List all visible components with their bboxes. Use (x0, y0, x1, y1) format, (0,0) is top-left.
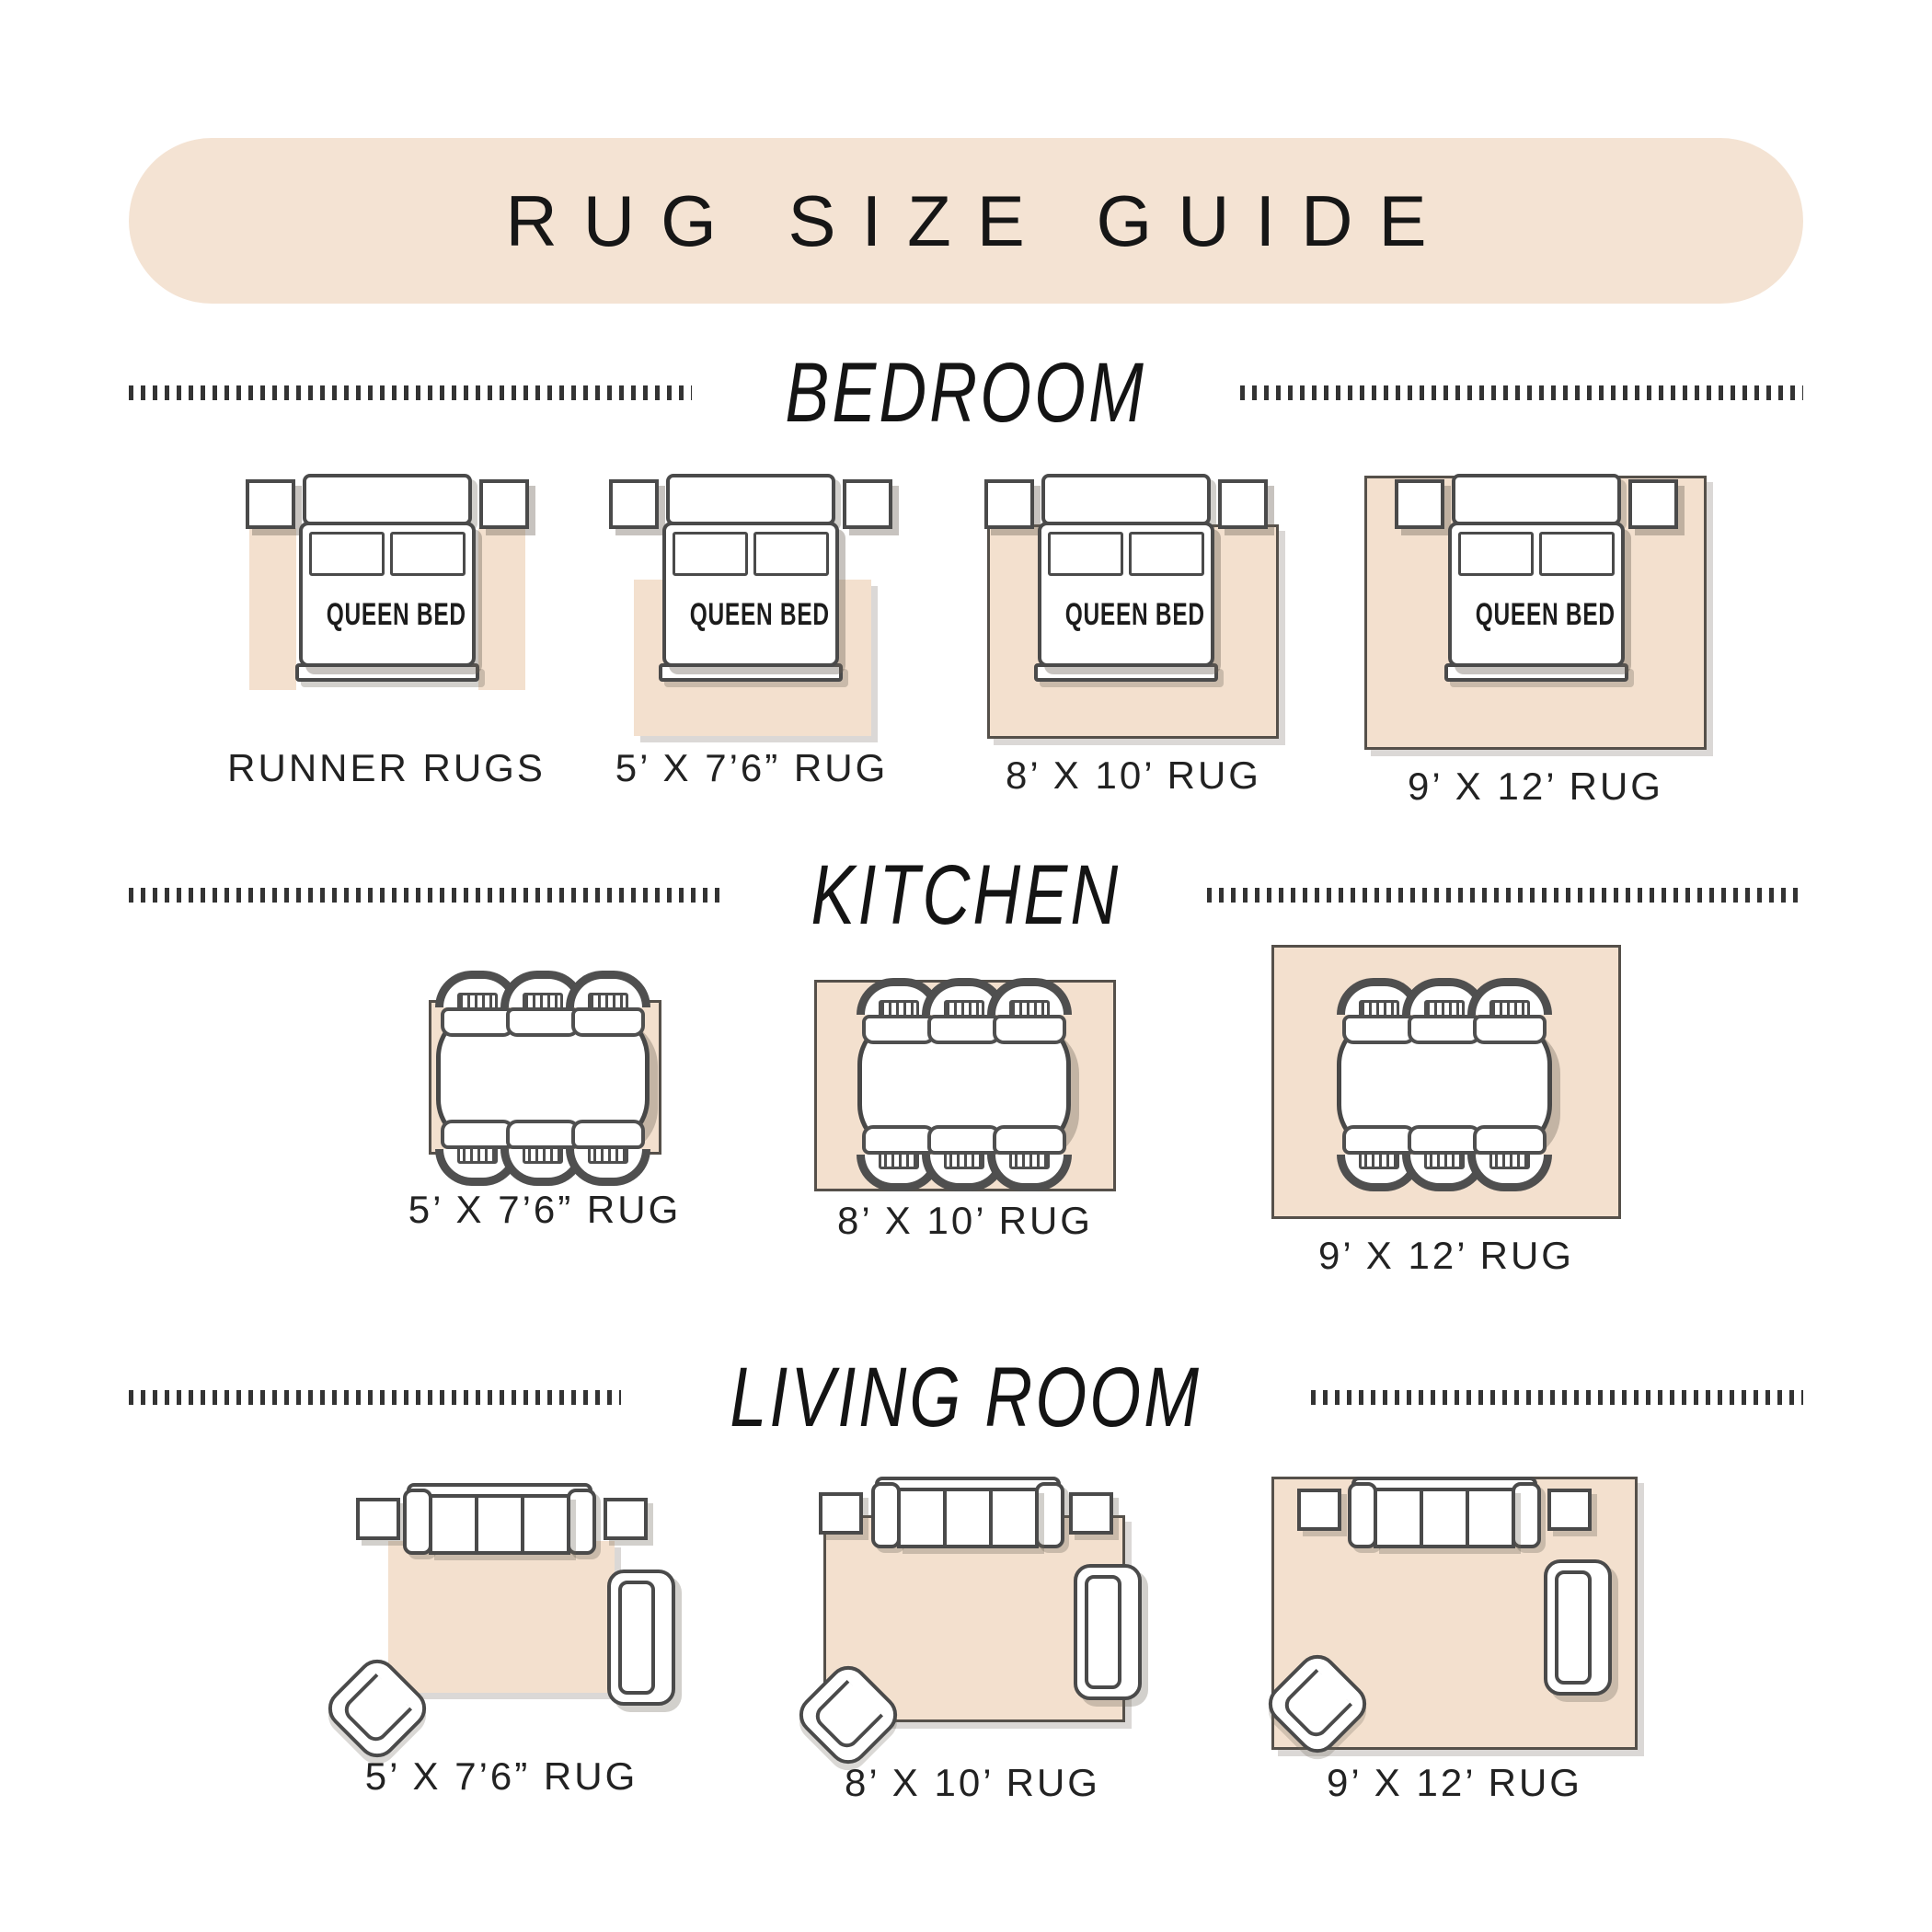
pillow-icon (1458, 532, 1534, 576)
rug-size-label: 9’ X 12’ RUG (1333, 762, 1738, 811)
queen-bed-label: QUEEN BED (1065, 597, 1187, 633)
headboard-icon (666, 474, 835, 525)
queen-bed-label: QUEEN BED (1476, 597, 1597, 633)
section-header-living-room: LIVING ROOM (129, 1356, 1803, 1439)
sofa-icon (871, 1477, 1064, 1550)
bed-icon: QUEEN BED (1448, 522, 1625, 667)
bedroom-diagram-runner: QUEEN BED (246, 474, 529, 687)
rug-size-label: 5’ X 7’6” RUG (299, 1752, 704, 1801)
section-title-bedroom: BEDROOM (786, 345, 1147, 442)
rug-size-guide: RUG SIZE GUIDE BEDROOM QUEEN BED RUNNER … (0, 0, 1932, 1932)
rug-size-label: 8’ X 10’ RUG (763, 1196, 1167, 1246)
rug-size-label: 9’ X 12’ RUG (1252, 1758, 1657, 1808)
bedroom-diagram-9x12: QUEEN BED (1395, 474, 1678, 687)
pillow-icon (1129, 532, 1204, 576)
sofa-icon (403, 1483, 596, 1557)
pillow-icon (753, 532, 829, 576)
rug-size-label: 9’ X 12’ RUG (1244, 1231, 1649, 1281)
side-table-icon (1297, 1489, 1341, 1531)
rug-size-label: RUNNER RUGS (184, 743, 589, 793)
section-header-kitchen: KITCHEN (129, 854, 1803, 937)
bedroom-diagram-8x10: QUEEN BED (984, 474, 1268, 687)
section-title-living-room: LIVING ROOM (730, 1350, 1202, 1446)
sofa-icon (1348, 1477, 1541, 1550)
side-table-icon (604, 1498, 648, 1540)
side-table-icon (356, 1498, 400, 1540)
nightstand-icon (1628, 479, 1678, 529)
pillow-icon (673, 532, 748, 576)
pillow-icon (390, 532, 466, 576)
dotted-divider (1240, 385, 1803, 400)
chair-icon (985, 978, 1074, 1044)
chair-icon (1466, 1125, 1554, 1191)
nightstand-icon (984, 479, 1034, 529)
side-table-icon (1547, 1489, 1592, 1531)
side-table-icon (1069, 1492, 1113, 1535)
kitchen-diagram-5x76 (436, 1009, 650, 1147)
page-title: RUG SIZE GUIDE (479, 179, 1452, 263)
headboard-icon (1452, 474, 1621, 525)
chaise-icon (1074, 1564, 1142, 1700)
dotted-divider (129, 385, 692, 400)
dotted-divider (1311, 1390, 1803, 1405)
kitchen-diagram-9x12 (1337, 1017, 1552, 1153)
kitchen-diagram-8x10 (857, 1017, 1071, 1153)
pillow-icon (1048, 532, 1123, 576)
title-banner: RUG SIZE GUIDE (129, 138, 1803, 304)
bed-icon: QUEEN BED (1038, 522, 1214, 667)
queen-bed-label: QUEEN BED (690, 597, 811, 633)
rug-size-label: 5’ X 7’6” RUG (549, 743, 954, 793)
pillow-icon (309, 532, 385, 576)
nightstand-icon (1218, 479, 1268, 529)
rug-size-label: 5’ X 7’6” RUG (342, 1185, 747, 1235)
chair-icon (564, 971, 652, 1037)
nightstand-icon (609, 479, 659, 529)
headboard-icon (1041, 474, 1211, 525)
chair-icon (564, 1120, 652, 1186)
nightstand-icon (1395, 479, 1444, 529)
nightstand-icon (843, 479, 892, 529)
rug-5x76 (388, 1541, 615, 1693)
nightstand-icon (479, 479, 529, 529)
dotted-divider (129, 1390, 621, 1405)
section-header-bedroom: BEDROOM (129, 351, 1803, 434)
chair-icon (985, 1125, 1074, 1191)
chaise-icon (1544, 1559, 1612, 1696)
chair-icon (1466, 978, 1554, 1044)
nightstand-icon (246, 479, 295, 529)
section-title-kitchen: KITCHEN (811, 847, 1121, 944)
bed-icon: QUEEN BED (662, 522, 839, 667)
bed-icon: QUEEN BED (299, 522, 476, 667)
headboard-icon (303, 474, 472, 525)
rug-size-label: 8’ X 10’ RUG (931, 751, 1336, 800)
queen-bed-label: QUEEN BED (327, 597, 448, 633)
pillow-icon (1539, 532, 1615, 576)
dotted-divider (1207, 888, 1803, 903)
chaise-icon (607, 1570, 675, 1706)
bedroom-diagram-5x76: QUEEN BED (609, 474, 892, 687)
side-table-icon (819, 1492, 863, 1535)
rug-size-label: 8’ X 10’ RUG (770, 1758, 1175, 1808)
dotted-divider (129, 888, 725, 903)
